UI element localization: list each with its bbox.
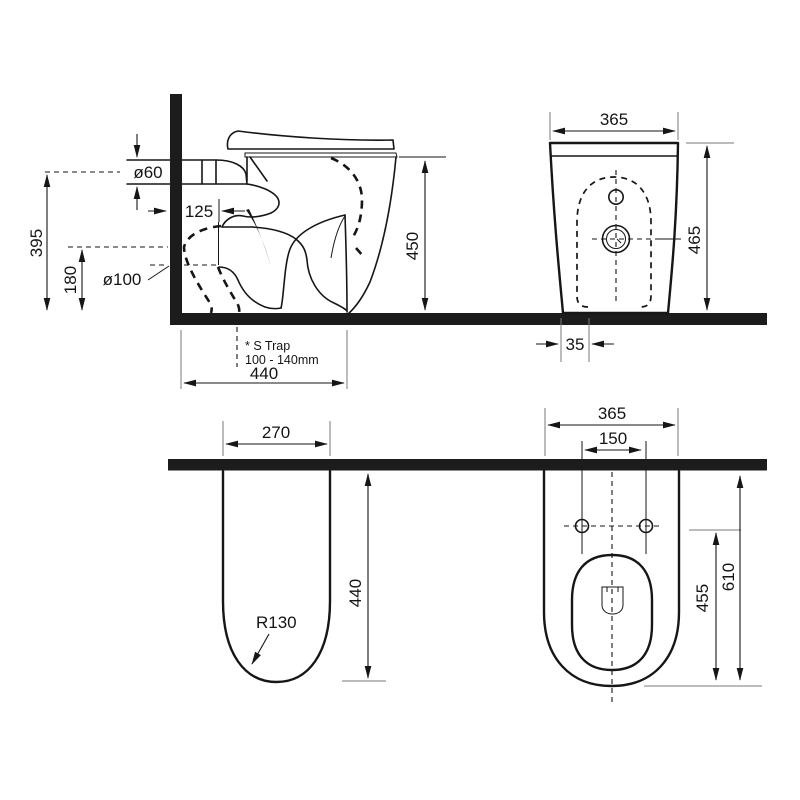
s-trap-note: * S Trap 100 - 140mm xyxy=(245,339,319,367)
s-trap-pipe-outer xyxy=(184,226,221,313)
wall-section xyxy=(170,94,182,325)
dim-395-label: 395 xyxy=(27,229,46,257)
dim-outlet-diameter: ø100 xyxy=(103,266,169,289)
weir-line xyxy=(331,216,345,258)
hidden-bowl-outline xyxy=(331,158,362,240)
trap-inner-wall xyxy=(252,227,346,310)
dim-455-label: 455 xyxy=(693,584,712,612)
s-trap-note-line2: 100 - 140mm xyxy=(245,353,319,367)
dim-440-plan: 440 xyxy=(342,474,386,681)
dim-465: 465 xyxy=(685,143,734,310)
front-body xyxy=(550,143,678,313)
dim-270: 270 xyxy=(223,421,330,456)
dim-r130-label: R130 xyxy=(256,613,297,632)
s-trap-pipe-inner xyxy=(218,267,239,313)
technical-drawing-page: 395 180 ø60 ø100 125 450 xyxy=(0,0,800,800)
body-back-corner xyxy=(216,160,247,184)
under-bowl-curve xyxy=(219,267,281,309)
plan-wall-section xyxy=(168,459,767,471)
dim-465-label: 465 xyxy=(685,226,704,254)
dim-395: 395 xyxy=(27,175,47,310)
s-trap-note-line1: * S Trap xyxy=(245,339,290,353)
dim-inlet-diameter: ø60 xyxy=(133,134,162,210)
trap-outer-wall xyxy=(281,215,345,308)
dim-440-plan-label: 440 xyxy=(346,579,365,607)
dim-o60-label: ø60 xyxy=(133,163,162,182)
seat-lid xyxy=(227,131,394,149)
dim-365-front-label: 365 xyxy=(600,110,628,129)
dim-450: 450 xyxy=(399,157,446,310)
dim-270-label: 270 xyxy=(262,423,290,442)
dim-455: 455 xyxy=(644,530,762,686)
seat-ring xyxy=(245,153,397,157)
side-view: 395 180 ø60 ø100 125 450 xyxy=(27,94,767,389)
dim-610-label: 610 xyxy=(719,563,738,591)
floor-section xyxy=(170,313,767,325)
dim-365-plan-label: 365 xyxy=(598,404,626,423)
toilet-front-outline xyxy=(550,143,681,313)
dim-610: 610 xyxy=(719,476,740,680)
dim-150-label: 150 xyxy=(599,429,627,448)
outlet-hole-tick xyxy=(617,239,621,243)
dim-o100-label: ø100 xyxy=(103,270,142,289)
dim-450-label: 450 xyxy=(403,232,422,260)
toilet-dimension-drawing: 395 180 ø60 ø100 125 450 xyxy=(0,0,800,800)
hidden-bowl-outline-stub xyxy=(356,248,363,256)
plan-top-view: 365 150 455 610 xyxy=(544,404,762,702)
dim-150: 150 xyxy=(585,429,641,450)
dim-125: 125 xyxy=(148,199,245,265)
dim-35-label: 35 xyxy=(566,335,585,354)
dim-125-label: 125 xyxy=(185,202,213,221)
hinge-notch xyxy=(247,157,267,181)
trap-upleg-edge xyxy=(345,215,347,312)
profile-outline xyxy=(223,471,330,682)
dim-365-front: 365 xyxy=(550,110,678,140)
dim-180: 180 xyxy=(61,250,82,310)
hidden-pedestal-outline xyxy=(577,177,651,307)
dim-r130: R130 xyxy=(252,613,297,664)
dim-180-label: 180 xyxy=(61,266,80,294)
bowl-rim-section xyxy=(222,184,279,227)
